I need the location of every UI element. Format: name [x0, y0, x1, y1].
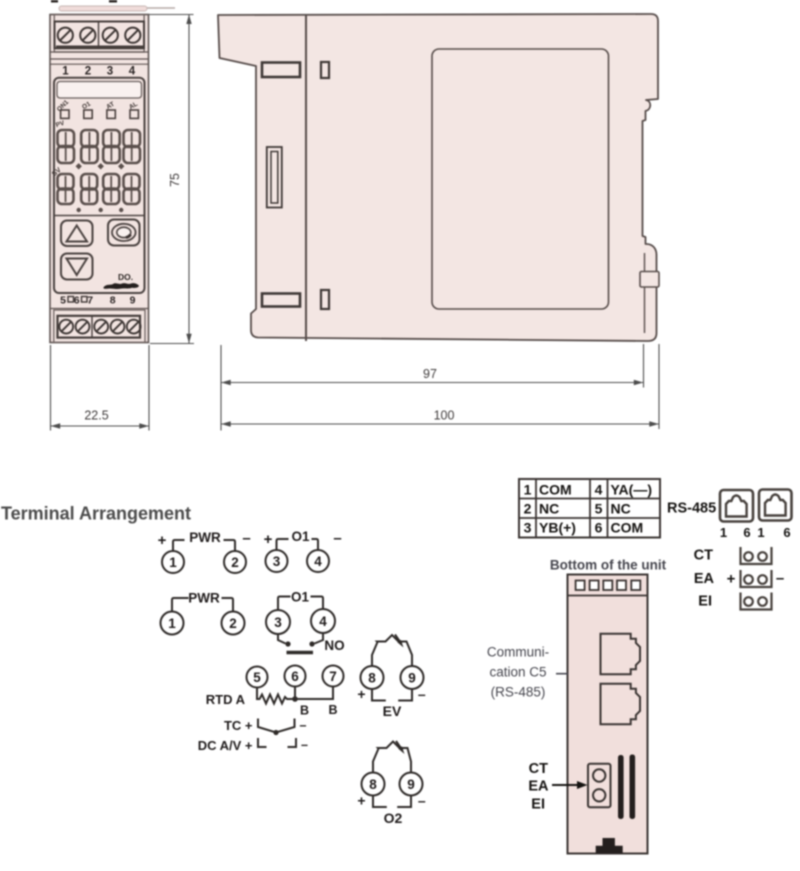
- svg-text:6: 6: [74, 295, 80, 307]
- svg-text:7: 7: [329, 669, 337, 684]
- svg-text:EI: EI: [698, 594, 712, 610]
- svg-text:1: 1: [720, 525, 727, 540]
- svg-text:2: 2: [231, 555, 239, 570]
- svg-text:DC A/V +: DC A/V +: [198, 738, 253, 753]
- svg-text:–: –: [776, 570, 784, 587]
- svg-text:1: 1: [524, 482, 532, 498]
- svg-text:COM: COM: [611, 520, 644, 536]
- svg-text:DO.: DO.: [118, 272, 133, 282]
- svg-text:9: 9: [408, 671, 416, 686]
- svg-text:22.5: 22.5: [84, 409, 108, 423]
- svg-text:8: 8: [369, 777, 377, 792]
- svg-text:CT: CT: [529, 761, 548, 777]
- svg-text:8: 8: [368, 671, 376, 686]
- svg-text:TC +: TC +: [224, 718, 253, 733]
- svg-text:YA(—): YA(—): [611, 482, 653, 498]
- svg-text:COM: COM: [539, 482, 572, 498]
- svg-text:–: –: [242, 530, 250, 547]
- svg-text:9: 9: [407, 777, 415, 792]
- svg-text:+: +: [727, 571, 736, 588]
- svg-text:8: 8: [110, 295, 116, 307]
- svg-text:EI: EI: [531, 797, 545, 813]
- svg-text:CT: CT: [694, 548, 713, 564]
- svg-text:7: 7: [87, 295, 93, 307]
- svg-text:3: 3: [524, 520, 532, 536]
- svg-text:EV: EV: [383, 703, 402, 719]
- svg-text:+: +: [357, 793, 365, 809]
- svg-text:6: 6: [595, 520, 603, 536]
- svg-text:+: +: [264, 531, 273, 548]
- svg-text:Terminal Arrangement: Terminal Arrangement: [1, 504, 191, 524]
- svg-text:4: 4: [129, 66, 136, 78]
- svg-text:2: 2: [85, 66, 91, 78]
- svg-text:–: –: [301, 738, 308, 752]
- svg-text:4: 4: [595, 482, 603, 498]
- svg-text:75: 75: [168, 173, 182, 187]
- svg-text:–: –: [300, 719, 307, 733]
- svg-text:Bottom of the unit: Bottom of the unit: [550, 558, 667, 573]
- svg-text:6: 6: [743, 525, 750, 540]
- svg-text:5: 5: [595, 501, 603, 517]
- svg-text:5: 5: [60, 295, 66, 307]
- svg-text:Communi-: Communi-: [487, 645, 549, 660]
- svg-text:PWR: PWR: [188, 591, 220, 606]
- svg-text:cation C5: cation C5: [489, 665, 546, 680]
- svg-text:97: 97: [423, 367, 437, 381]
- svg-text:1: 1: [169, 555, 177, 570]
- svg-text:O1: O1: [291, 590, 310, 605]
- svg-text:3: 3: [107, 66, 113, 78]
- svg-text:3: 3: [274, 615, 282, 630]
- svg-text:RTD A: RTD A: [206, 692, 246, 707]
- svg-text:2: 2: [229, 616, 237, 631]
- svg-text:1: 1: [168, 616, 176, 631]
- svg-text:+: +: [357, 686, 365, 702]
- svg-text:YB(+): YB(+): [539, 520, 576, 536]
- svg-text:PWR: PWR: [189, 530, 221, 545]
- svg-text:1: 1: [62, 66, 69, 78]
- svg-text:RS-485: RS-485: [667, 501, 716, 517]
- svg-text:–: –: [418, 686, 426, 702]
- svg-text:6: 6: [783, 525, 790, 540]
- svg-text:3: 3: [273, 554, 281, 569]
- svg-text:6: 6: [291, 669, 299, 684]
- svg-text:NC: NC: [539, 501, 559, 517]
- svg-text:4: 4: [319, 614, 327, 629]
- svg-text:EA: EA: [694, 571, 715, 587]
- svg-text:–: –: [333, 530, 341, 547]
- svg-text:4: 4: [314, 554, 322, 569]
- svg-text:9: 9: [130, 295, 136, 307]
- svg-text:EA: EA: [528, 779, 549, 795]
- svg-text:B: B: [300, 704, 309, 718]
- svg-text:1: 1: [757, 525, 764, 540]
- svg-text:NC: NC: [611, 501, 631, 517]
- svg-text:NO: NO: [324, 638, 344, 653]
- svg-text:2: 2: [524, 501, 532, 517]
- svg-text:100: 100: [434, 409, 455, 423]
- svg-text:B: B: [328, 703, 337, 717]
- svg-text:O2: O2: [384, 810, 403, 826]
- svg-text:–: –: [418, 793, 426, 809]
- svg-text:+: +: [158, 532, 167, 549]
- svg-text:O1: O1: [291, 529, 310, 544]
- svg-text:5: 5: [253, 670, 261, 685]
- svg-text:(RS-485): (RS-485): [491, 685, 546, 700]
